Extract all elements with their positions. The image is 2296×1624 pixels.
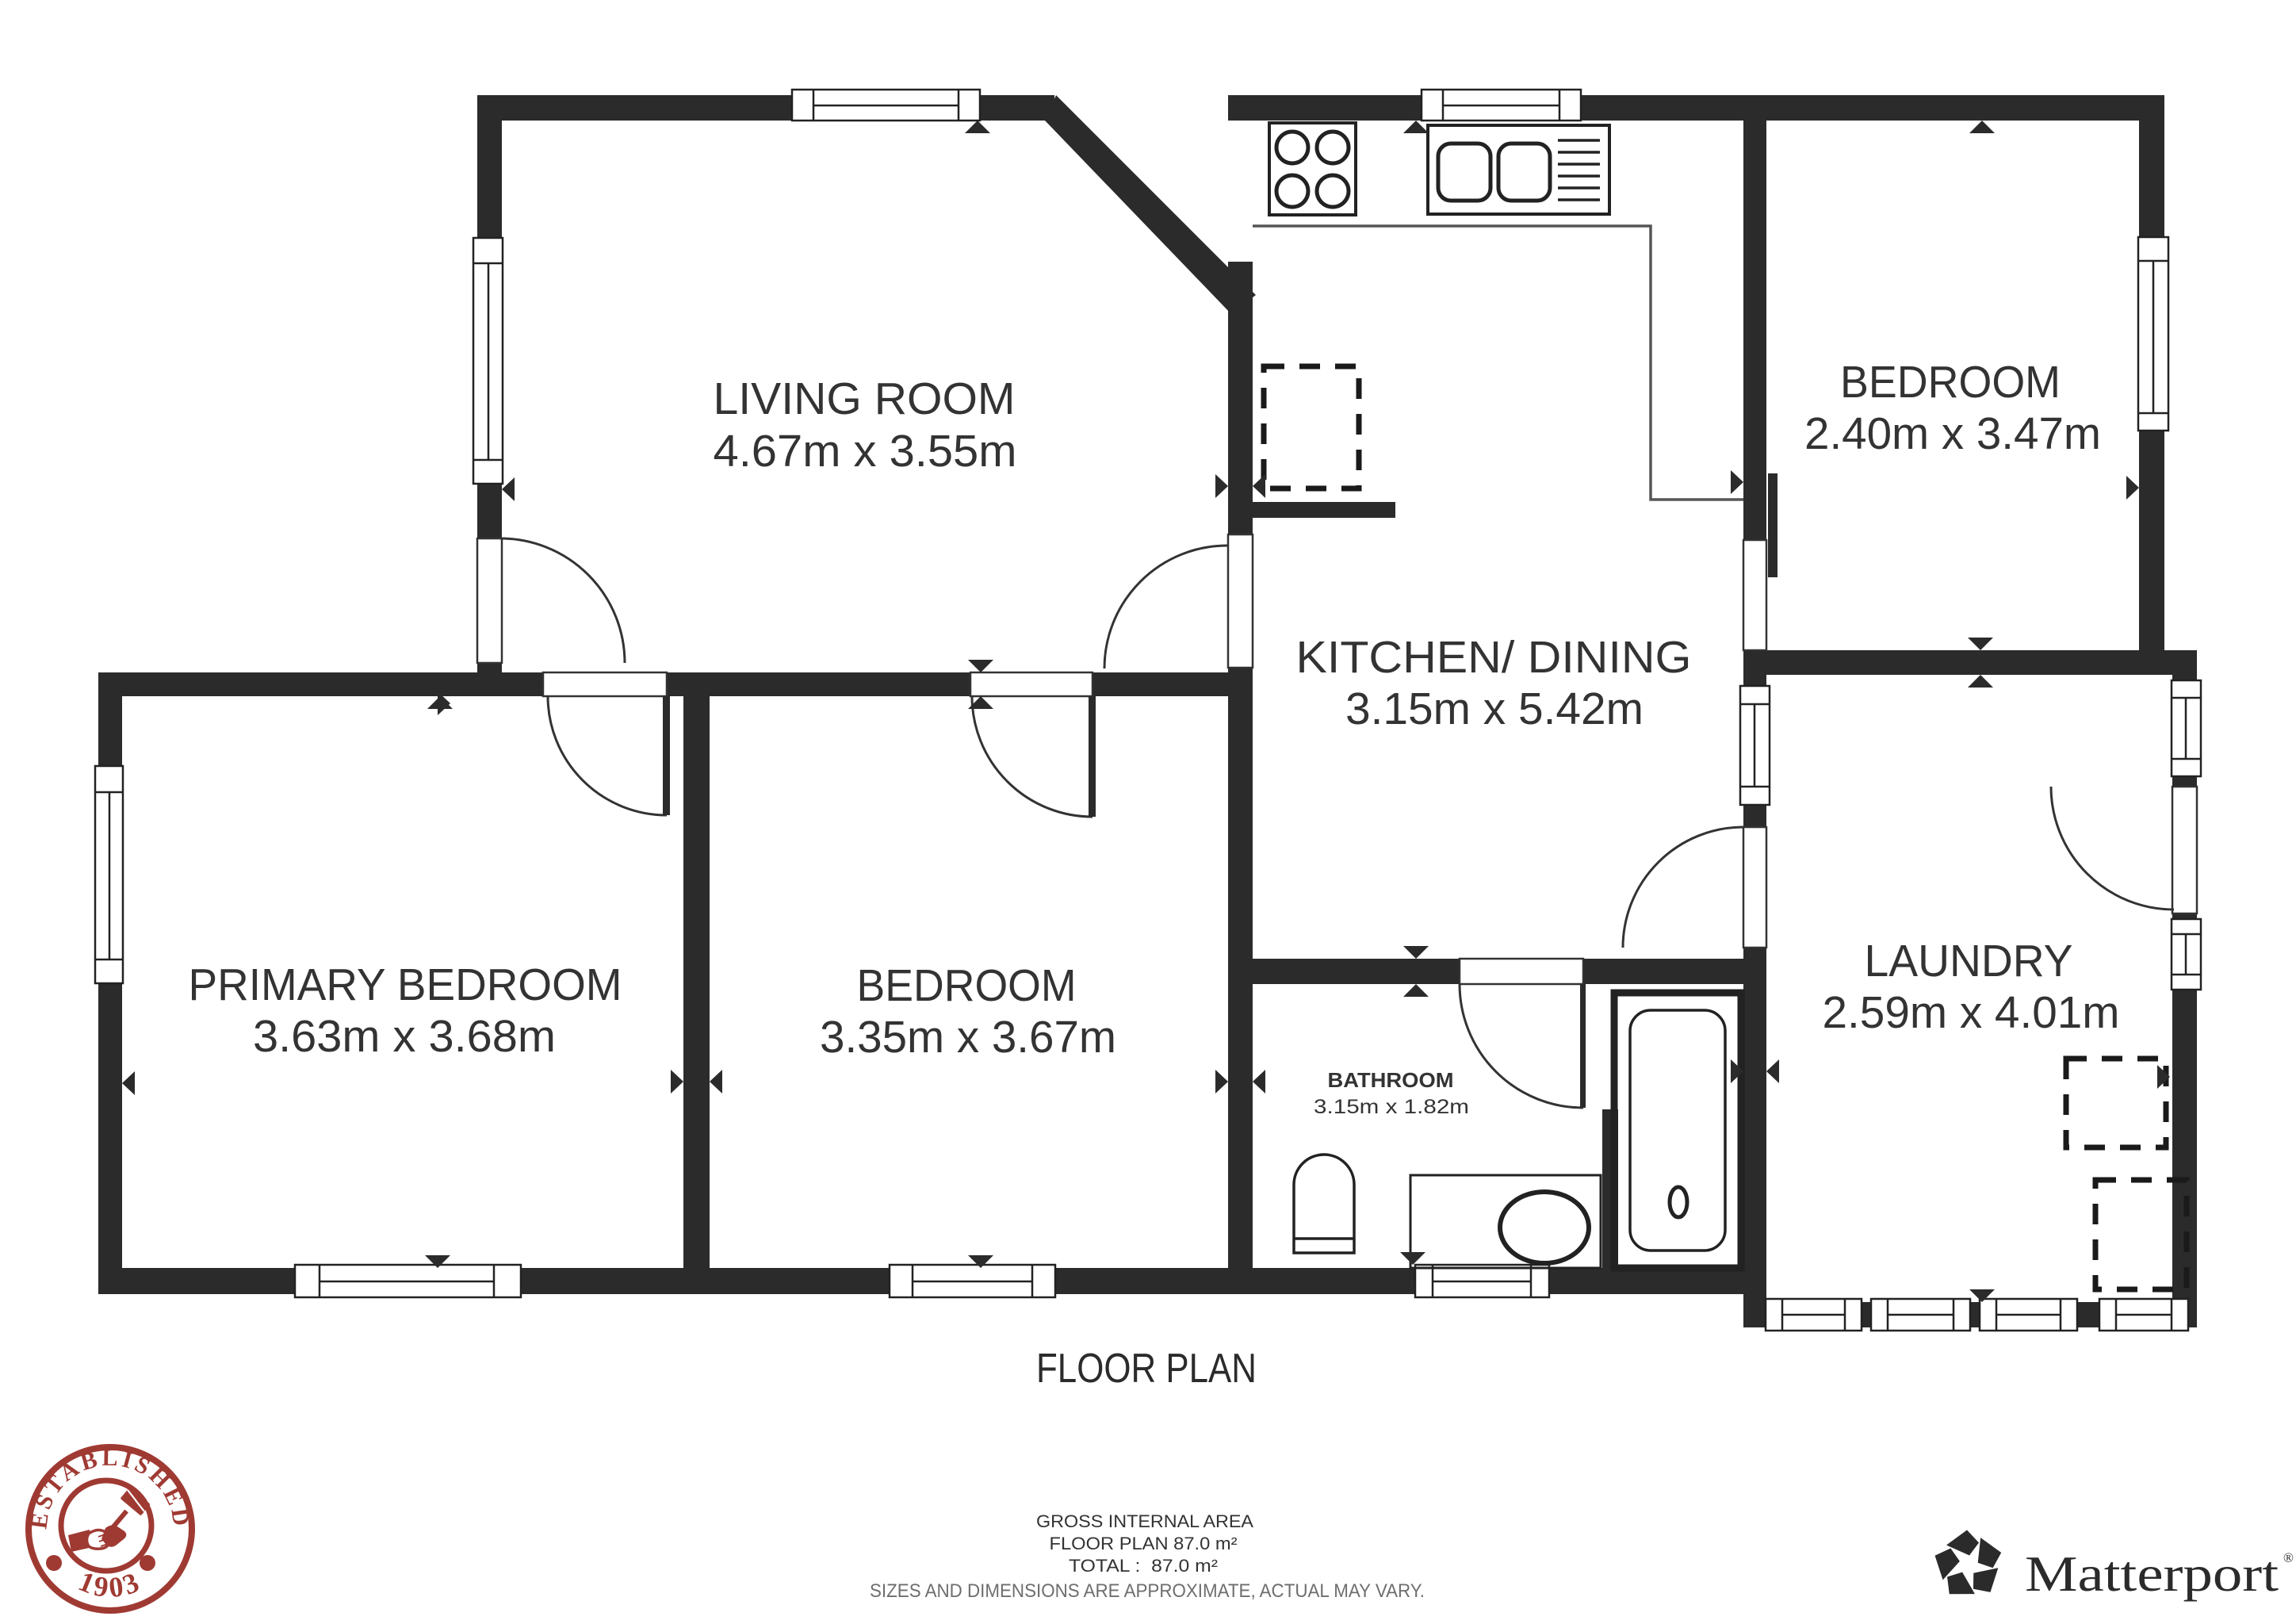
svg-text:3.15m x 1.82m: 3.15m x 1.82m <box>1314 1096 1469 1118</box>
svg-text:BATHROOM: BATHROOM <box>1328 1068 1454 1092</box>
svg-text:2.59m x 4.01m: 2.59m x 4.01m <box>1823 987 2120 1038</box>
svg-text:2.40m x 3.47m: 2.40m x 3.47m <box>1804 408 2101 459</box>
svg-text:LIVING ROOM: LIVING ROOM <box>714 373 1016 424</box>
svg-text:3.63m x 3.68m: 3.63m x 3.68m <box>253 1011 556 1062</box>
svg-text:3.35m x 3.67m: 3.35m x 3.67m <box>820 1012 1116 1063</box>
svg-text:LAUNDRY: LAUNDRY <box>1865 936 2073 986</box>
svg-text:FLOOR PLAN 87.0 m²: FLOOR PLAN 87.0 m² <box>1050 1534 1238 1553</box>
svg-text:®: ® <box>2283 1550 2294 1565</box>
svg-text:4.67m x 3.55m: 4.67m x 3.55m <box>714 426 1017 477</box>
svg-text:BEDROOM: BEDROOM <box>1840 357 2061 408</box>
svg-text:GROSS INTERNAL AREA: GROSS INTERNAL AREA <box>1036 1511 1253 1531</box>
svg-text:SIZES AND DIMENSIONS ARE APPRO: SIZES AND DIMENSIONS ARE APPROXIMATE, AC… <box>870 1580 1425 1602</box>
svg-text:FLOOR PLAN: FLOOR PLAN <box>1036 1346 1257 1392</box>
svg-text:PRIMARY BEDROOM: PRIMARY BEDROOM <box>189 959 622 1010</box>
svg-text:Matterport: Matterport <box>2025 1545 2279 1602</box>
svg-text:TOTAL : 87.0 m²: TOTAL : 87.0 m² <box>1069 1556 1218 1576</box>
svg-text:KITCHEN/ DINING: KITCHEN/ DINING <box>1296 632 1692 683</box>
svg-text:3.15m x 5.42m: 3.15m x 5.42m <box>1345 684 1644 734</box>
svg-text:BEDROOM: BEDROOM <box>857 960 1077 1011</box>
